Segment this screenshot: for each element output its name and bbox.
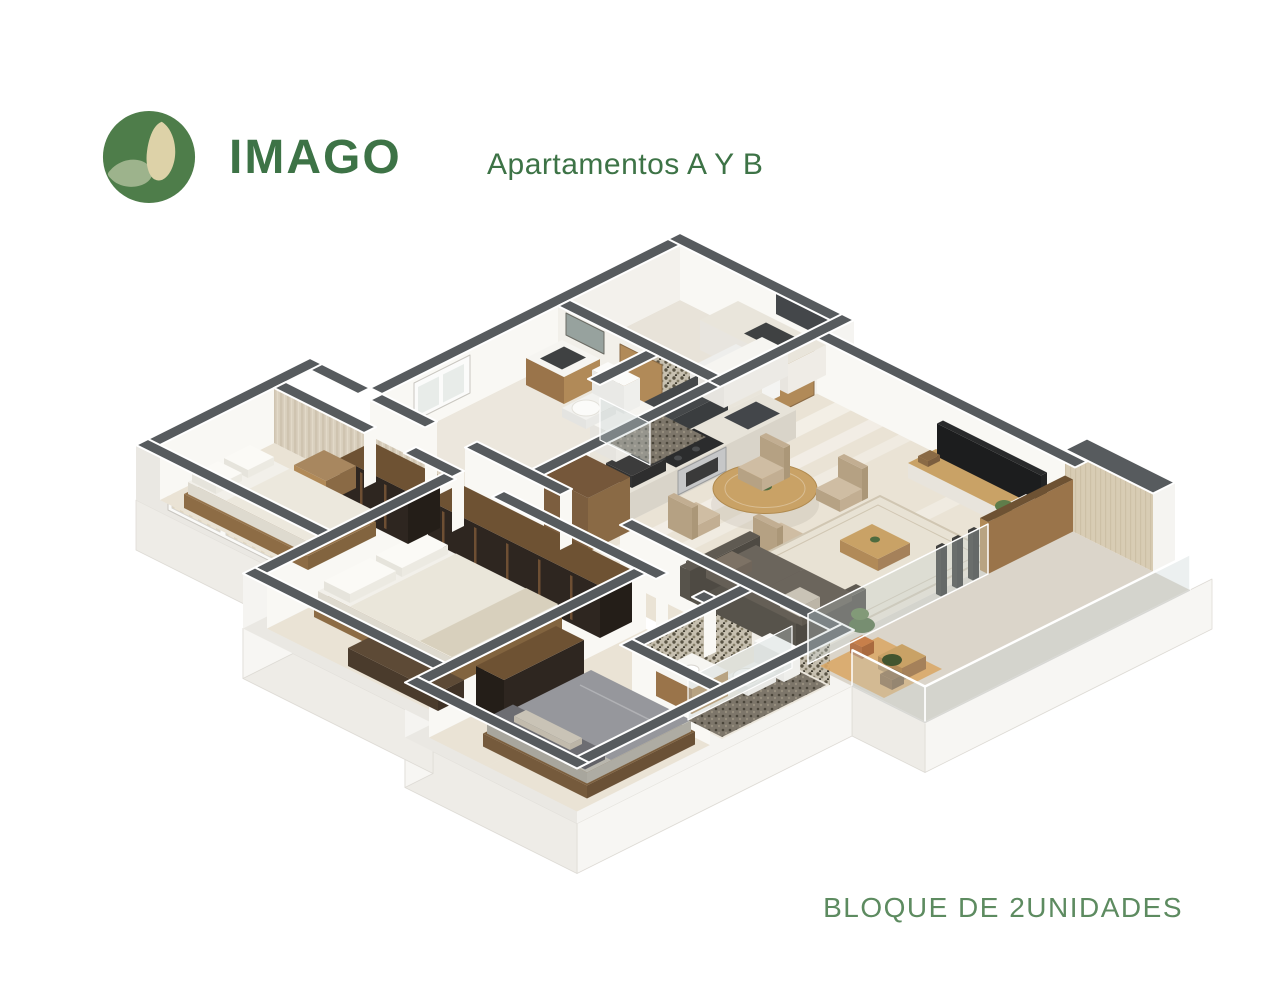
- brand-title: IMAGO: [229, 130, 402, 185]
- block-units-caption: BLOQUE DE 2UNIDADES: [823, 892, 1183, 924]
- imago-logo-icon: [100, 107, 198, 207]
- brand-subtitle: Apartamentos A Y B: [487, 148, 763, 182]
